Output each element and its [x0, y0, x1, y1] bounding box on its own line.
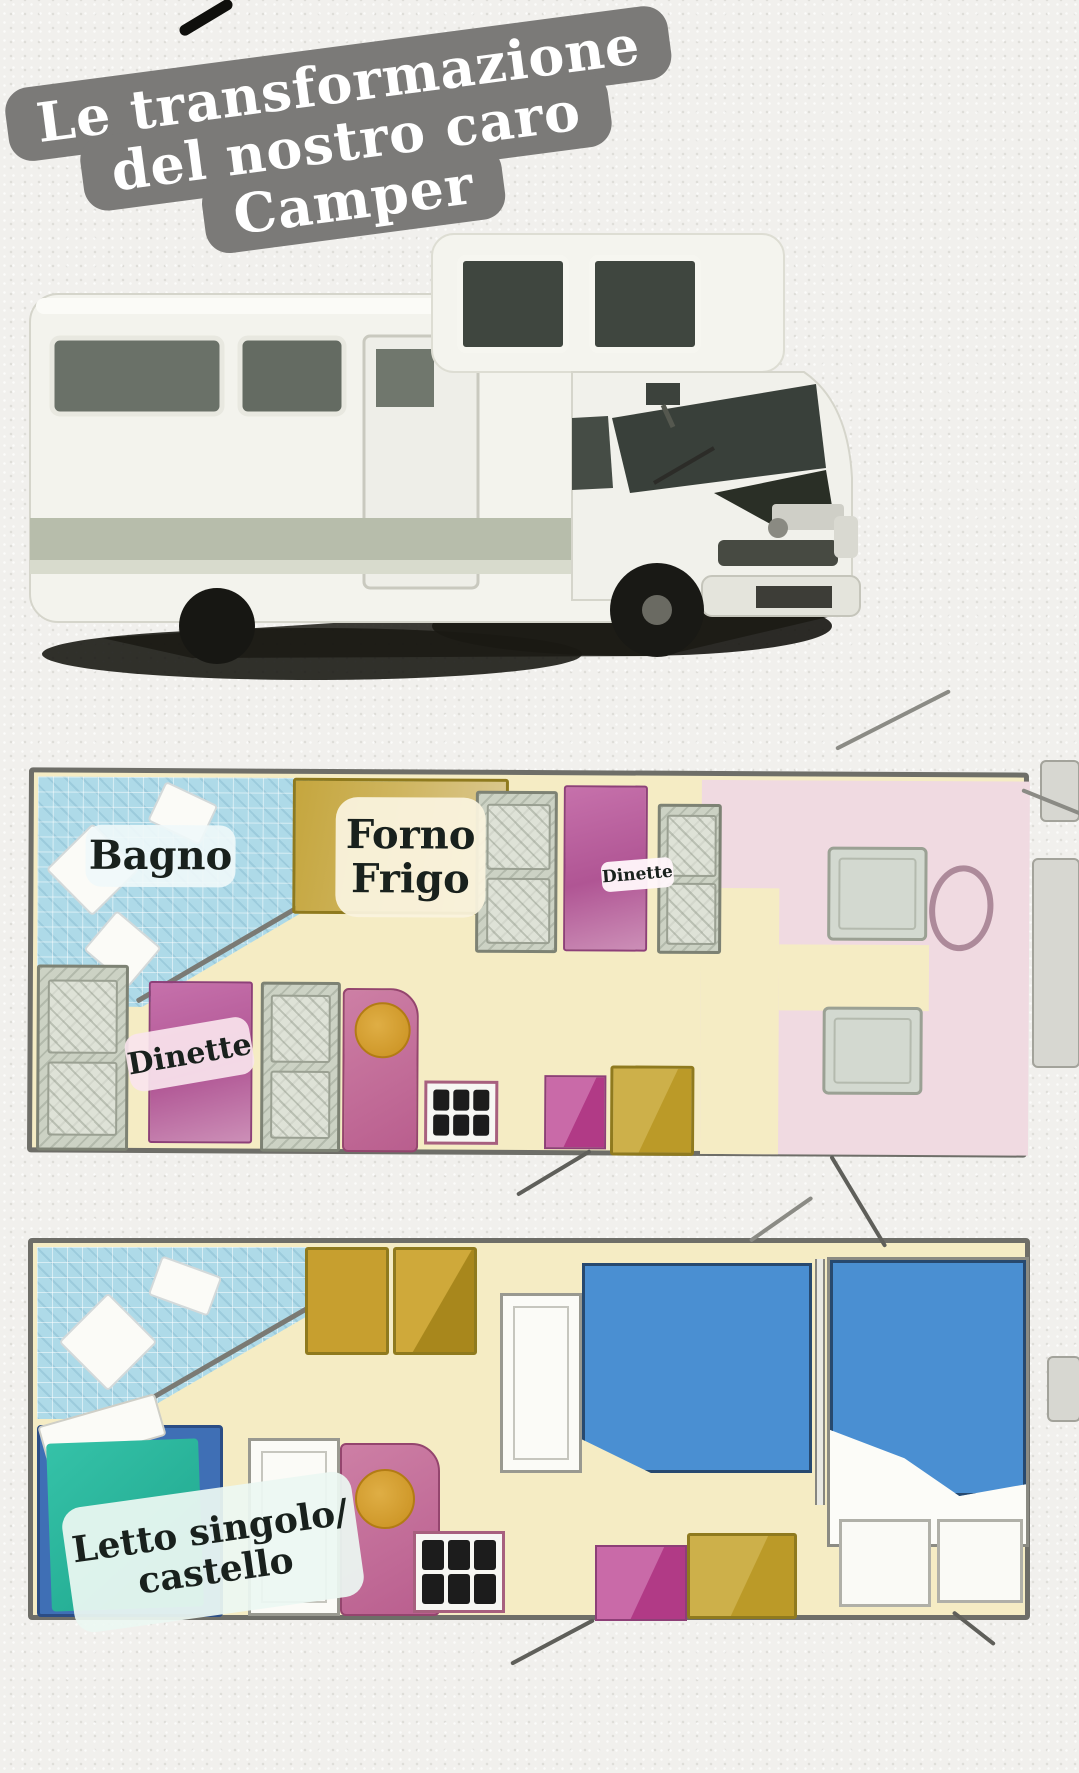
wardrobe-door	[393, 1247, 477, 1355]
stove-burner	[474, 1540, 496, 1570]
bench-cushion	[666, 815, 716, 877]
passenger-seat	[827, 847, 927, 942]
kitchen-unit-magenta	[544, 1075, 606, 1149]
stove	[424, 1080, 498, 1144]
stove-burner	[448, 1540, 470, 1570]
bed-left-mattress	[582, 1263, 812, 1473]
floorplan-day: Bagno Forno Frigo Dinette	[27, 767, 1029, 1157]
bench-cushion	[486, 804, 550, 870]
frigo-label-text: Frigo	[351, 857, 470, 902]
bench-cushion	[486, 878, 550, 944]
kitchen-unit-magenta	[595, 1545, 687, 1621]
sink-bowl	[355, 1469, 415, 1529]
sink-bowl	[354, 1002, 410, 1058]
forno-frigo-label: Forno Frigo	[335, 797, 486, 918]
bagno-label: Bagno	[85, 825, 235, 888]
stove-burner	[433, 1115, 449, 1136]
bed-divider	[815, 1259, 825, 1505]
bench-cushion	[270, 1071, 330, 1139]
bench-cushion	[666, 883, 716, 945]
kitchen-unit-gold	[687, 1533, 797, 1619]
stove-burner	[448, 1574, 470, 1604]
floorplan-night: Letto singolo/ castello	[28, 1238, 1030, 1620]
stove-burner	[453, 1115, 469, 1136]
stove-burner	[473, 1115, 489, 1136]
stove-burner	[474, 1574, 496, 1604]
rear-step-block	[1047, 1356, 1079, 1422]
bench-cushion	[47, 1061, 117, 1135]
wardrobe	[305, 1247, 477, 1355]
bench-cushion	[48, 979, 118, 1053]
rear-bench-cushion	[937, 1519, 1023, 1603]
dinette-front-bench-left	[475, 791, 558, 953]
cab-front-block	[1032, 858, 1079, 1068]
dinette-front-label-text: Dinette	[601, 862, 673, 886]
forno-label-text: Forno	[346, 813, 476, 858]
dinette-rear-bench-right	[260, 982, 341, 1152]
dinette-rear-label-text: Dinette	[125, 1027, 254, 1081]
kitchen-unit-gold	[610, 1065, 694, 1155]
wardrobe-door	[305, 1247, 389, 1355]
cab-walkway	[779, 944, 929, 1011]
bench-cushion	[270, 995, 330, 1063]
stove-burner	[422, 1574, 444, 1604]
stove-burner	[473, 1090, 489, 1111]
stove-burner	[422, 1540, 444, 1570]
story-page: Le transformazione del nostro caro Campe…	[0, 0, 1079, 1773]
stove-burner	[433, 1090, 449, 1111]
bagno-label-text: Bagno	[89, 834, 233, 879]
stove-burner	[453, 1090, 469, 1111]
rear-bench-cushion	[839, 1519, 931, 1607]
dinette-rear-bench-left	[36, 964, 129, 1150]
stove	[413, 1531, 505, 1613]
bed-left-headboard	[500, 1293, 582, 1473]
dinette-front-label: Dinette	[600, 857, 674, 893]
driver-seat	[822, 1007, 922, 1096]
